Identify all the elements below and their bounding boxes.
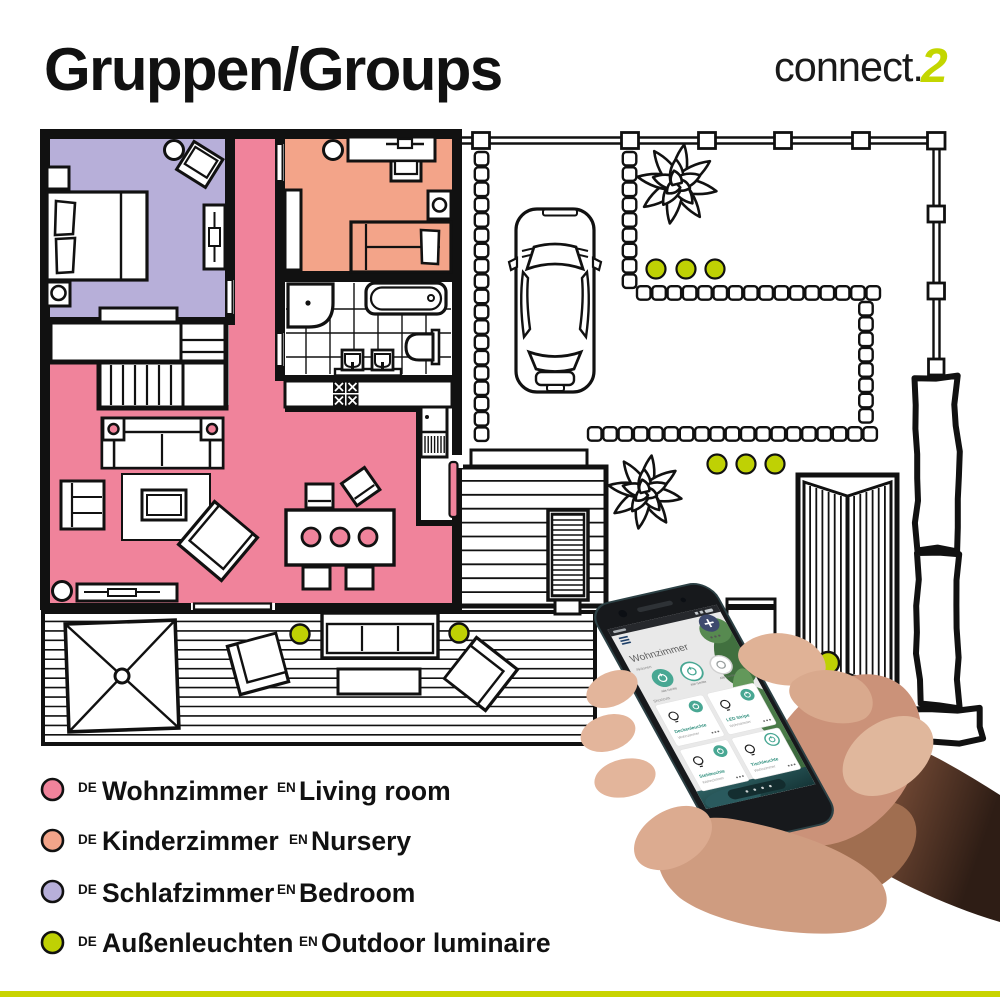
svg-text:Bedroom: Bedroom [299, 878, 415, 908]
svg-text:Außenleuchten: Außenleuchten [102, 928, 293, 958]
svg-text:connect.: connect. [774, 43, 923, 90]
svg-text:Kinderzimmer: Kinderzimmer [102, 826, 279, 856]
svg-text:DE: DE [78, 934, 97, 949]
svg-text:Nursery: Nursery [311, 826, 411, 856]
svg-text:EN: EN [277, 780, 296, 795]
svg-text:DE: DE [78, 780, 97, 795]
svg-text:DE: DE [78, 882, 97, 897]
svg-text:Schlafzimmer: Schlafzimmer [102, 878, 274, 908]
svg-text:Outdoor luminaire: Outdoor luminaire [321, 928, 551, 958]
svg-text:Living room: Living room [299, 776, 451, 806]
svg-text:EN: EN [289, 832, 308, 847]
svg-text:DE: DE [78, 832, 97, 847]
svg-text:EN: EN [277, 882, 296, 897]
svg-text:EN: EN [299, 934, 318, 949]
svg-text:2: 2 [920, 40, 948, 93]
svg-text:Wohnzimmer: Wohnzimmer [102, 776, 268, 806]
svg-text:Gruppen/Groups: Gruppen/Groups [44, 36, 502, 103]
